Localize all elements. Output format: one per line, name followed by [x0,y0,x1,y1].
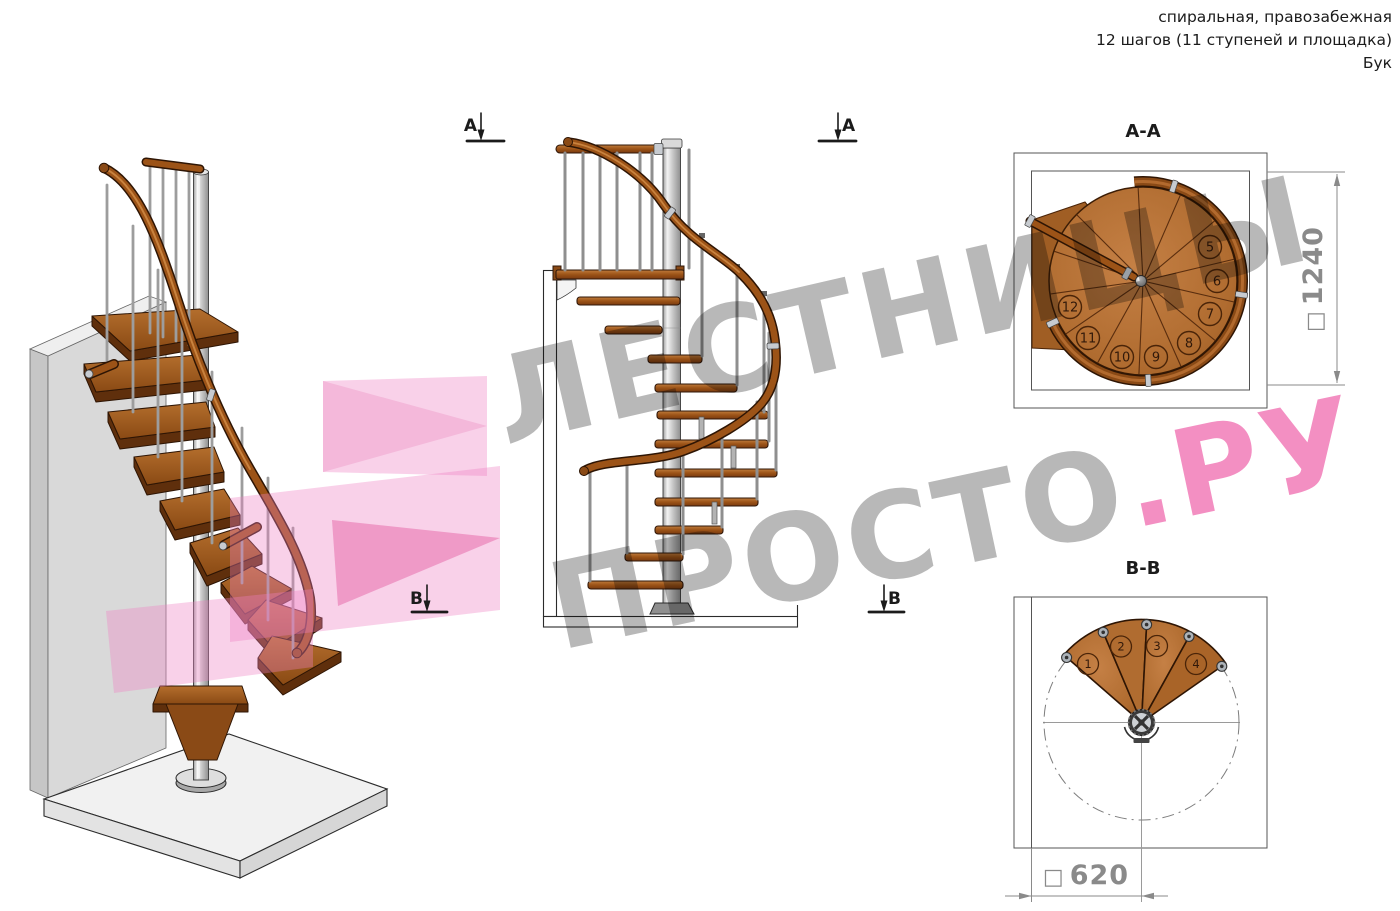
step-number: 1 [1084,657,1091,671]
step-number: 3 [1153,639,1160,653]
step-number: 10 [1114,351,1131,366]
arrow-down-icon [835,130,842,142]
view-3d [30,162,500,878]
dim-arrow-icon [1334,174,1340,186]
section-aa-title: А-А [1125,121,1160,142]
step-number: 4 [1192,657,1199,671]
dimension-bb: □620 [1005,848,1168,902]
header-line-type: спиральная, правозабежная [1158,8,1392,26]
section-marker-a-left: А [464,113,504,141]
drawing-sheet: спиральная, правозабежная 12 шагов (11 с… [0,0,1400,911]
dim-arrow-icon [1142,893,1155,899]
header-line-steps: 12 шагов (11 ступеней и площадка) [1096,31,1392,49]
marker-letter-a: А [464,116,478,136]
watermark: ЛЕСТНИЦЫ ПРОСТО.РУ [480,150,1372,679]
marker-letter-a: А [842,116,856,136]
section-marker-a-right: А [819,113,856,141]
marker-letter-b: В [410,589,423,609]
step-number: 2 [1117,640,1124,654]
header-line-material: Бук [1363,54,1392,72]
view-section-bb: В-В [1005,558,1267,902]
dimension-width-label: □620 [1043,860,1129,891]
dim-arrow-icon [1019,893,1032,899]
section-bb-title: В-В [1126,558,1161,579]
arrow-down-icon [478,130,485,142]
step-number: 8 [1185,337,1193,352]
step-number: 9 [1152,351,1160,366]
technical-drawing: спиральная, правозабежная 12 шагов (11 с… [0,0,1400,911]
header-notes: спиральная, правозабежная 12 шагов (11 с… [1096,8,1392,72]
